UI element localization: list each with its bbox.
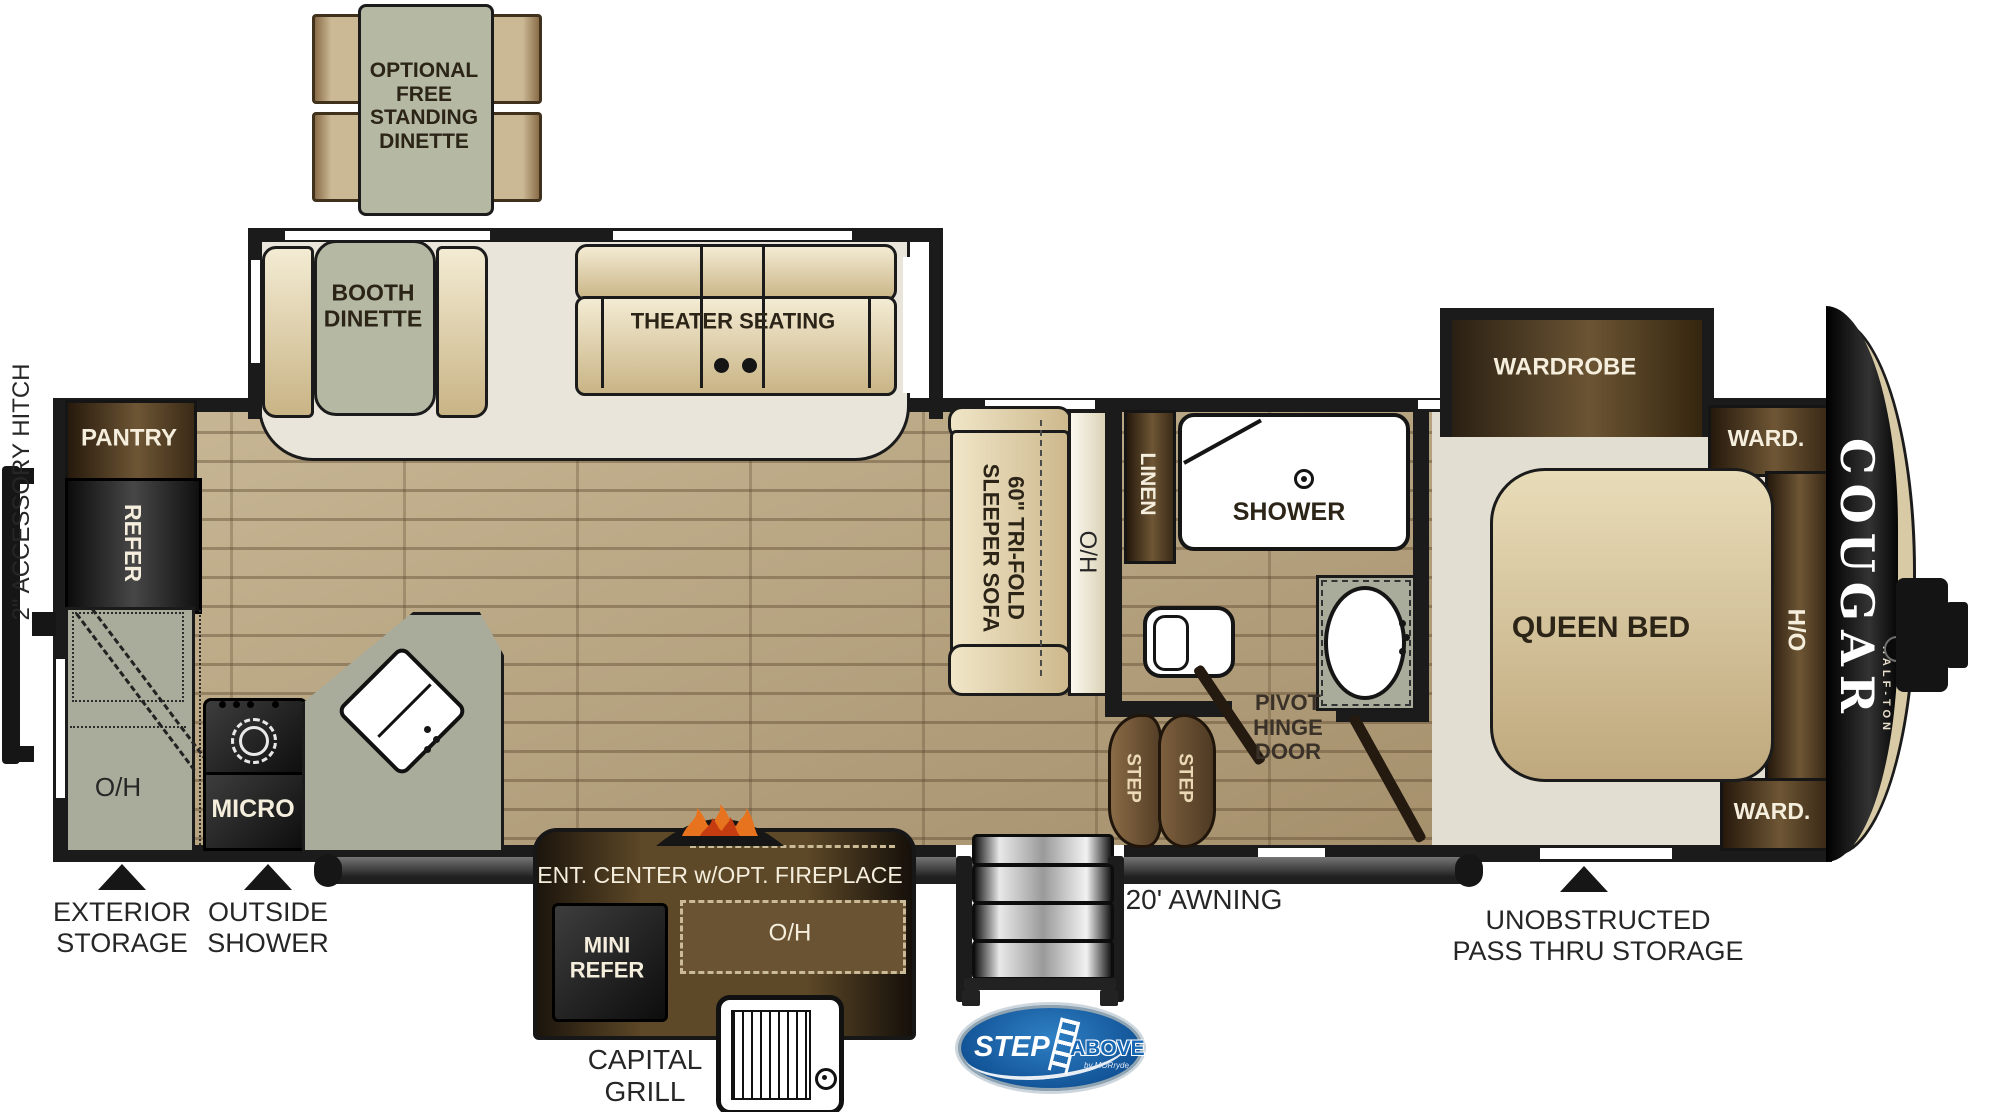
awning-end-cap [1455,854,1483,887]
slide-window-booth [285,231,490,240]
faucet-dot [433,736,440,743]
vanity-faucet-dot [1399,648,1406,655]
sofa-oh-label: O/H [1073,531,1101,574]
capital-grill-icon [716,995,844,1112]
refer-label: REFER [119,504,145,582]
step-base-bar [964,978,1116,990]
bath-bottom-wall-left [1105,701,1232,717]
free-standing-dinette-label: OPTIONAL FREE STANDING DINETTE [370,59,479,153]
sofa-fold-dashed [1040,420,1042,676]
logo-above-text: ABOVE [1070,1037,1145,1061]
pass-thru-label: UNOBSTRUCTED PASS THRU STORAGE [1452,905,1743,967]
exterior-storage-pointer [98,864,146,890]
queen-bed-label: QUEEN BED [1512,611,1690,645]
grill-grate [731,1010,811,1100]
slide-window-right [903,257,912,393]
capital-grill-label: CAPITAL GRILL [588,1044,703,1108]
kingpin [1946,602,1968,668]
booth-bench-right [436,246,488,418]
step-1-label: STEP [1122,753,1143,803]
vanity-faucet-dot [1403,634,1410,641]
booth-bench-left [262,246,314,418]
pass-thru-pointer [1560,866,1608,892]
stove-knob [233,701,240,708]
mini-refer-label: MINI REFER [570,933,645,982]
faucet-dot [424,726,431,733]
shower-drain [1294,469,1314,489]
theater-seating-label: THEATER SEATING [631,310,836,335]
awning-label: 20' AWNING [1126,884,1283,916]
entry-step-tread [972,902,1114,942]
kitchen-oh-label: O/H [95,773,141,803]
micro-label: MICRO [211,795,294,823]
stove-knob [219,701,226,708]
booth-dinette-label: BOOTH DINETTE [324,280,422,332]
step-2-label: STEP [1174,753,1195,803]
rv-floorplan: 2" ACCESSORY HITCH OPTIONAL FREE STANDIN… [0,0,2000,1112]
slide-window-left [251,260,260,363]
outside-shower-pointer [244,864,292,890]
burner-icon-inner [239,726,269,756]
bath-left-wall [1105,412,1122,716]
interior-step-tread [972,834,1114,866]
vanity-sink [1324,586,1406,700]
logo-byline-text: by MORryde [1084,1061,1129,1070]
toilet-tank [1153,615,1189,671]
step-foot [1100,990,1118,1006]
vanity [1316,575,1416,711]
sleeper-sofa-label: 60" TRI-FOLD SLEEPER SOFA [978,464,1027,633]
step-above-logo: STEP ABOVE by MORryde [955,1002,1146,1094]
kingpin-box [1896,578,1948,692]
outside-shower-label: OUTSIDE SHOWER [207,897,329,959]
accessory-hitch-label: 2" ACCESSORY HITCH [8,363,36,620]
ent-center-label: ENT. CENTER w/OPT. FIREPLACE [537,863,903,889]
faucet-dot [424,746,431,753]
fs-chair [490,14,542,104]
logo-step-text: STEP [974,1031,1050,1064]
entry-step-tread [972,940,1114,980]
linen-label: LINEN [1135,453,1159,516]
slide-window-theater [613,231,852,240]
fireplace-flame-icon [652,790,788,846]
wardrobe-label: WARDROBE [1494,355,1637,382]
fs-chair [312,14,364,104]
shower-pan [1178,413,1410,551]
sofa-arm-bottom [948,644,1072,696]
theater-back-row [575,244,897,302]
shower-label: SHOWER [1233,498,1346,526]
ho-label: H/O [1782,609,1809,652]
toilet [1143,606,1235,678]
ward-bottom-label: WARD. [1734,799,1811,825]
counter-dotted-vline [199,610,201,845]
pantry-label: PANTRY [81,426,177,453]
entry-step-tread [972,864,1114,904]
awning-end-cap [314,854,342,887]
theater-armrest-line [868,298,871,388]
exterior-storage-label: EXTERIOR STORAGE [53,897,191,959]
cupholder [742,358,757,373]
fs-chair [312,112,364,202]
bottom-window-bedroom [1540,848,1672,859]
ent-oh-label: O/H [769,921,812,948]
cupholder [714,358,729,373]
brand-logo: COUGAR [1830,438,1882,722]
theater-armrest-line [601,298,604,388]
vanity-faucet-dot [1399,620,1406,627]
step-foot [962,990,980,1006]
counter-dotted-line [70,726,186,728]
top-wall-window-bedroom [1418,400,1442,409]
stove-knob [272,701,279,708]
ward-top-label: WARD. [1728,426,1805,452]
fs-chair [490,112,542,202]
shower-corner-line [1183,419,1262,465]
stove-knob [247,701,254,708]
hitch-tab-bottom [18,746,34,762]
grill-knob [815,1068,837,1090]
pivot-hinge-door-label: PIVOT HINGE DOOR [1253,691,1323,765]
